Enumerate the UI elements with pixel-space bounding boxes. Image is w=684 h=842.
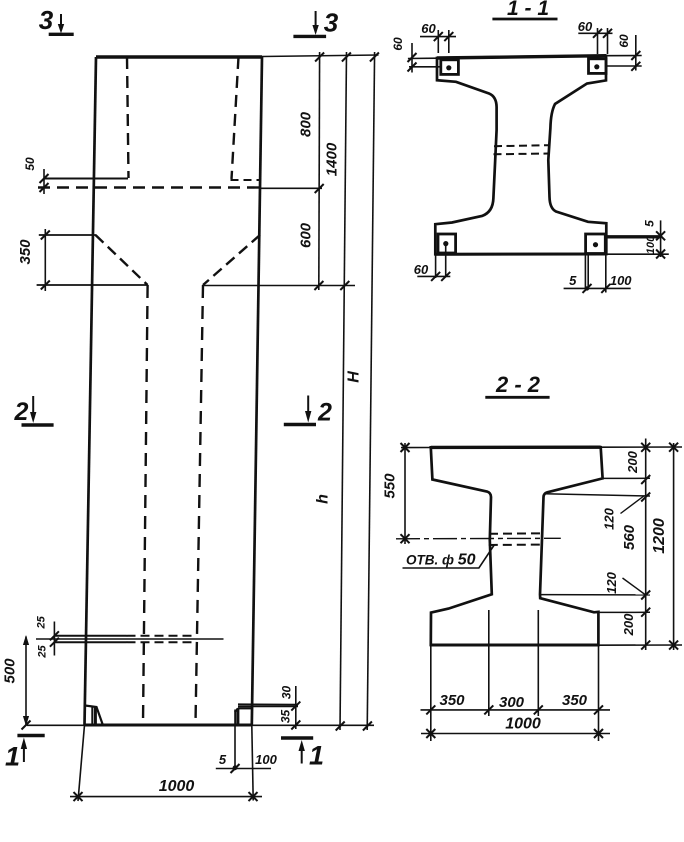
svg-text:1200: 1200 — [651, 518, 668, 554]
svg-text:5: 5 — [219, 752, 227, 767]
svg-text:120: 120 — [602, 507, 617, 529]
svg-text:3: 3 — [324, 8, 339, 38]
svg-text:350: 350 — [439, 692, 465, 709]
svg-text:ОТВ. ф 50: ОТВ. ф 50 — [406, 552, 476, 569]
svg-text:1: 1 — [5, 742, 20, 772]
svg-text:25: 25 — [35, 615, 47, 629]
svg-text:2: 2 — [14, 398, 29, 426]
svg-text:60: 60 — [578, 19, 593, 34]
svg-text:50: 50 — [23, 157, 37, 171]
svg-text:60: 60 — [391, 37, 405, 51]
svg-text:60: 60 — [414, 262, 429, 277]
svg-text:200: 200 — [621, 613, 636, 636]
svg-text:600: 600 — [298, 222, 315, 248]
svg-text:3: 3 — [39, 5, 54, 35]
svg-text:2 - 2: 2 - 2 — [495, 372, 541, 397]
svg-text:1400: 1400 — [324, 142, 341, 176]
svg-text:200: 200 — [625, 450, 640, 473]
svg-text:300: 300 — [499, 694, 525, 711]
svg-text:30: 30 — [280, 686, 294, 700]
svg-text:60: 60 — [421, 21, 436, 36]
svg-text:100: 100 — [645, 235, 657, 254]
svg-text:350: 350 — [17, 239, 34, 265]
svg-text:120: 120 — [604, 571, 619, 593]
svg-text:25: 25 — [37, 645, 49, 659]
svg-text:100: 100 — [255, 752, 277, 767]
svg-text:1 - 1: 1 - 1 — [507, 0, 549, 20]
svg-text:350: 350 — [562, 692, 588, 709]
svg-text:1: 1 — [309, 741, 324, 771]
svg-text:550: 550 — [382, 473, 399, 499]
svg-text:h: h — [315, 494, 332, 504]
svg-text:1000: 1000 — [159, 778, 195, 795]
svg-text:35: 35 — [279, 710, 293, 724]
svg-text:60: 60 — [617, 34, 631, 48]
svg-text:5: 5 — [569, 273, 577, 288]
svg-text:560: 560 — [621, 524, 638, 550]
svg-text:2: 2 — [317, 399, 332, 427]
svg-text:800: 800 — [298, 111, 315, 137]
svg-text:5: 5 — [643, 220, 657, 227]
svg-text:H: H — [346, 371, 363, 383]
svg-text:100: 100 — [610, 273, 632, 288]
svg-text:500: 500 — [2, 658, 19, 684]
svg-text:1000: 1000 — [505, 716, 541, 733]
